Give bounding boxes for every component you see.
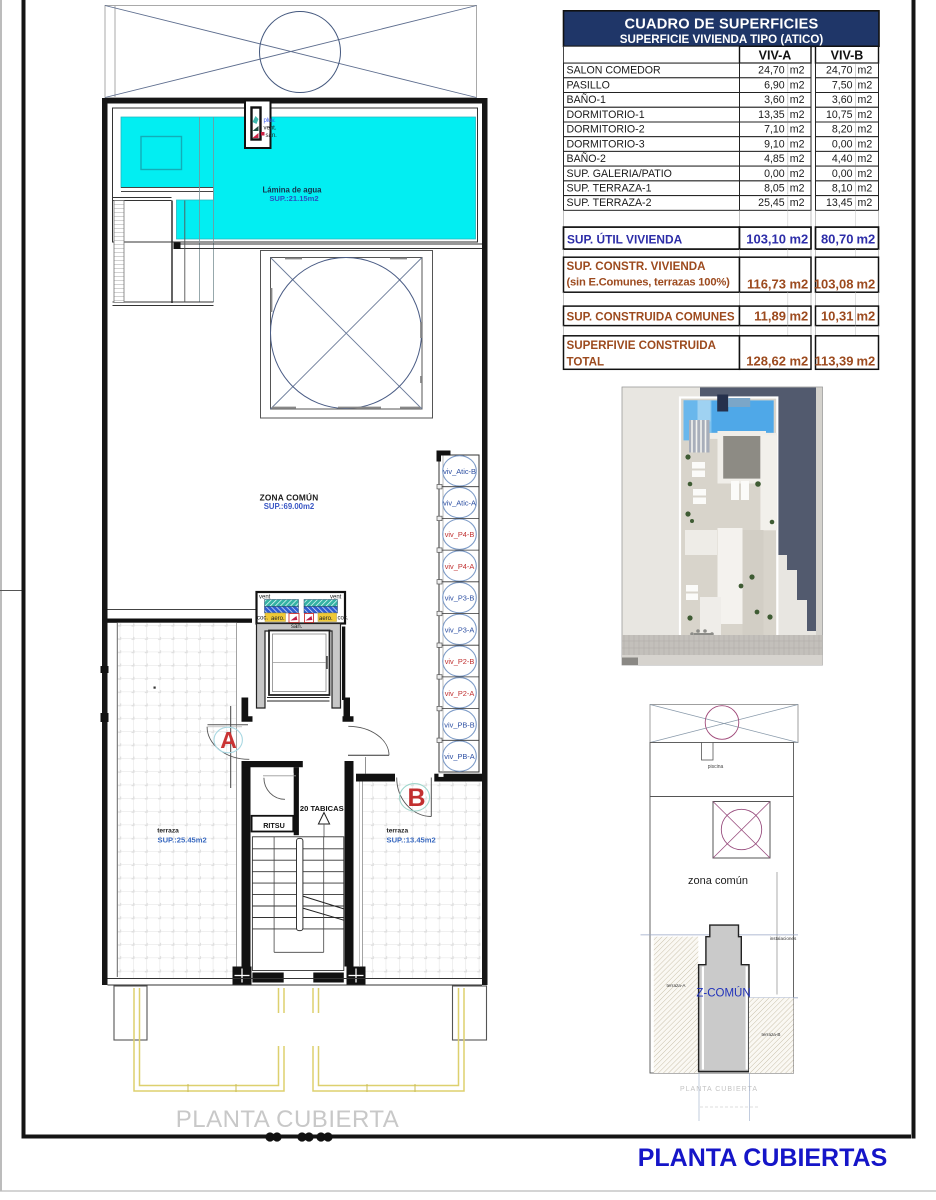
svg-text:113,39: 113,39 [814, 354, 853, 369]
svg-text:m2: m2 [790, 309, 809, 324]
svg-text:m2: m2 [857, 354, 876, 369]
svg-text:coc.: coc. [338, 616, 349, 622]
svg-text:6,90: 6,90 [764, 79, 785, 91]
svg-text:m2: m2 [858, 168, 873, 180]
svg-text:Z-COMÚN: Z-COMÚN [696, 987, 750, 1000]
svg-text:4,40: 4,40 [832, 153, 853, 165]
svg-text:viv_PB-B: viv_PB-B [444, 721, 474, 730]
svg-text:viv_P2-B: viv_P2-B [445, 657, 475, 666]
svg-text:103,10: 103,10 [746, 232, 786, 247]
svg-text:m2: m2 [790, 354, 809, 369]
svg-text:13,35: 13,35 [758, 109, 785, 121]
svg-text:9,10: 9,10 [764, 138, 785, 150]
svg-text:m2: m2 [858, 183, 873, 195]
svg-text:8,05: 8,05 [764, 183, 785, 195]
svg-text:10,75: 10,75 [826, 109, 853, 121]
svg-text:pluv.: pluv. [264, 118, 277, 124]
svg-text:vent: vent [259, 595, 271, 601]
svg-text:DORMITORIO-2: DORMITORIO-2 [567, 124, 645, 136]
svg-text:terraza-A: terraza-A [667, 983, 687, 988]
svg-text:SUP.:69.00m2: SUP.:69.00m2 [264, 502, 315, 511]
svg-text:A: A [220, 727, 237, 753]
svg-text:m2: m2 [857, 232, 876, 247]
svg-text:SUP. GALERIA/PATIO: SUP. GALERIA/PATIO [567, 168, 672, 180]
svg-text:m2: m2 [858, 124, 873, 136]
svg-text:8,20: 8,20 [832, 124, 853, 136]
svg-text:SUPERFIVIE CONSTRUIDA: SUPERFIVIE CONSTRUIDA [567, 339, 717, 352]
svg-text:san.: san. [266, 133, 278, 139]
svg-text:PLANTA CUBIERTAS: PLANTA CUBIERTAS [638, 1144, 888, 1172]
svg-text:VIV-B: VIV-B [831, 49, 864, 63]
svg-text:m2: m2 [790, 65, 805, 77]
svg-text:SUP. TERRAZA-1: SUP. TERRAZA-1 [567, 183, 652, 195]
svg-text:m2: m2 [790, 168, 805, 180]
svg-text:m2: m2 [858, 153, 873, 165]
svg-text:terraza-B: terraza-B [762, 1032, 781, 1037]
svg-text:m2: m2 [857, 277, 876, 292]
svg-text:SUP.:21.15m2: SUP.:21.15m2 [269, 194, 318, 203]
svg-text:0,00: 0,00 [832, 138, 853, 150]
svg-text:24,70: 24,70 [758, 65, 785, 77]
svg-text:TOTAL: TOTAL [567, 356, 605, 369]
svg-text:m2: m2 [858, 65, 873, 77]
svg-text:ZONA COMÚN: ZONA COMÚN [260, 492, 319, 503]
svg-text:SUP.:25.45m2: SUP.:25.45m2 [158, 836, 207, 845]
svg-text:coc.: coc. [257, 616, 268, 622]
svg-text:20 TABICAS: 20 TABICAS [300, 804, 344, 813]
svg-text:PLANTA CUBIERTA: PLANTA CUBIERTA [176, 1106, 400, 1133]
svg-text:m2: m2 [790, 232, 809, 247]
svg-text:m2: m2 [790, 138, 805, 150]
svg-text:SALON COMEDOR: SALON COMEDOR [567, 65, 662, 77]
svg-text:viv_Atic-A: viv_Atic-A [443, 499, 476, 508]
svg-text:m2: m2 [858, 197, 873, 209]
svg-text:m2: m2 [790, 109, 805, 121]
svg-text:PASILLO: PASILLO [567, 79, 610, 91]
svg-text:m2: m2 [858, 109, 873, 121]
svg-text:DORMITORIO-3: DORMITORIO-3 [567, 138, 645, 150]
svg-text:viv_Atic-B: viv_Atic-B [443, 467, 476, 476]
svg-text:103,08: 103,08 [814, 277, 854, 292]
svg-text:viv_P3-A: viv_P3-A [445, 625, 475, 634]
svg-text:m2: m2 [790, 94, 805, 106]
svg-text:piscina: piscina [708, 764, 724, 770]
svg-text:san.: san. [291, 624, 303, 630]
svg-text:13,45: 13,45 [826, 197, 853, 209]
svg-text:8,10: 8,10 [832, 183, 853, 195]
svg-text:RITSU: RITSU [263, 821, 285, 830]
svg-text:m2: m2 [790, 277, 809, 292]
svg-text:m2: m2 [857, 309, 876, 324]
svg-text:aero.: aero. [271, 616, 285, 622]
svg-text:m2: m2 [858, 138, 873, 150]
svg-text:zona común: zona común [688, 875, 748, 887]
svg-text:m2: m2 [858, 94, 873, 106]
svg-text:128,62: 128,62 [746, 354, 786, 369]
svg-text:SUP. TERRAZA-2: SUP. TERRAZA-2 [567, 197, 652, 209]
svg-text:0,00: 0,00 [832, 168, 853, 180]
svg-text:0,00: 0,00 [764, 168, 785, 180]
svg-text:10,31: 10,31 [821, 309, 854, 324]
svg-text:B: B [407, 784, 425, 812]
svg-text:BAÑO-1: BAÑO-1 [567, 93, 607, 106]
svg-text:terraza: terraza [157, 828, 179, 835]
svg-text:viv_P4-A: viv_P4-A [445, 562, 475, 571]
svg-text:viv_P3-B: viv_P3-B [445, 594, 475, 603]
svg-text:aero.: aero. [319, 616, 333, 622]
svg-text:116,73: 116,73 [747, 277, 786, 292]
svg-text:CUADRO DE SUPERFICIES: CUADRO DE SUPERFICIES [625, 17, 819, 33]
svg-text:25,45: 25,45 [758, 197, 785, 209]
svg-text:SUP.:13.45m2: SUP.:13.45m2 [387, 836, 436, 845]
svg-text:m2: m2 [858, 79, 873, 91]
svg-text:7,10: 7,10 [764, 124, 785, 136]
svg-text:vent: vent [330, 595, 342, 601]
svg-text:terraza: terraza [387, 828, 409, 835]
svg-text:viv_PB-A: viv_PB-A [444, 752, 474, 761]
svg-text:SUP. CONSTRUIDA COMUNES: SUP. CONSTRUIDA COMUNES [567, 311, 735, 324]
svg-text:m2: m2 [790, 124, 805, 136]
svg-text:DORMITORIO-1: DORMITORIO-1 [567, 109, 645, 121]
svg-text:m2: m2 [790, 183, 805, 195]
svg-text:VIV-A: VIV-A [759, 49, 792, 63]
svg-text:4,85: 4,85 [764, 153, 785, 165]
svg-text:BAÑO-2: BAÑO-2 [567, 152, 607, 165]
svg-text:24,70: 24,70 [826, 65, 853, 77]
svg-text:viv_P2-A: viv_P2-A [445, 689, 475, 698]
svg-text:m2: m2 [790, 153, 805, 165]
svg-text:viv_P4-B: viv_P4-B [445, 530, 475, 539]
svg-text:3,60: 3,60 [764, 94, 785, 106]
svg-text:11,89: 11,89 [754, 309, 786, 324]
svg-text:vent.: vent. [264, 126, 277, 132]
svg-text:3,60: 3,60 [832, 94, 853, 106]
svg-text:SUPERFICIE VIVIENDA TIPO (ATI: SUPERFICIE VIVIENDA TIPO (ATICO) [620, 33, 824, 46]
svg-text:m2: m2 [790, 79, 805, 91]
svg-text:m2: m2 [790, 197, 805, 209]
svg-text:(sin E.Comunes, terrazas 100%): (sin E.Comunes, terrazas 100%) [567, 277, 731, 289]
svg-text:7,50: 7,50 [832, 79, 853, 91]
svg-text:SUP. CONSTR. VIVIENDA: SUP. CONSTR. VIVIENDA [567, 260, 707, 273]
svg-text:SUP. ÚTIL VIVIENDA: SUP. ÚTIL VIVIENDA [567, 232, 683, 247]
svg-text:instalaciones: instalaciones [770, 936, 797, 941]
svg-text:PLANTA CUBIERTA: PLANTA CUBIERTA [680, 1086, 758, 1093]
svg-text:80,70: 80,70 [821, 232, 854, 247]
